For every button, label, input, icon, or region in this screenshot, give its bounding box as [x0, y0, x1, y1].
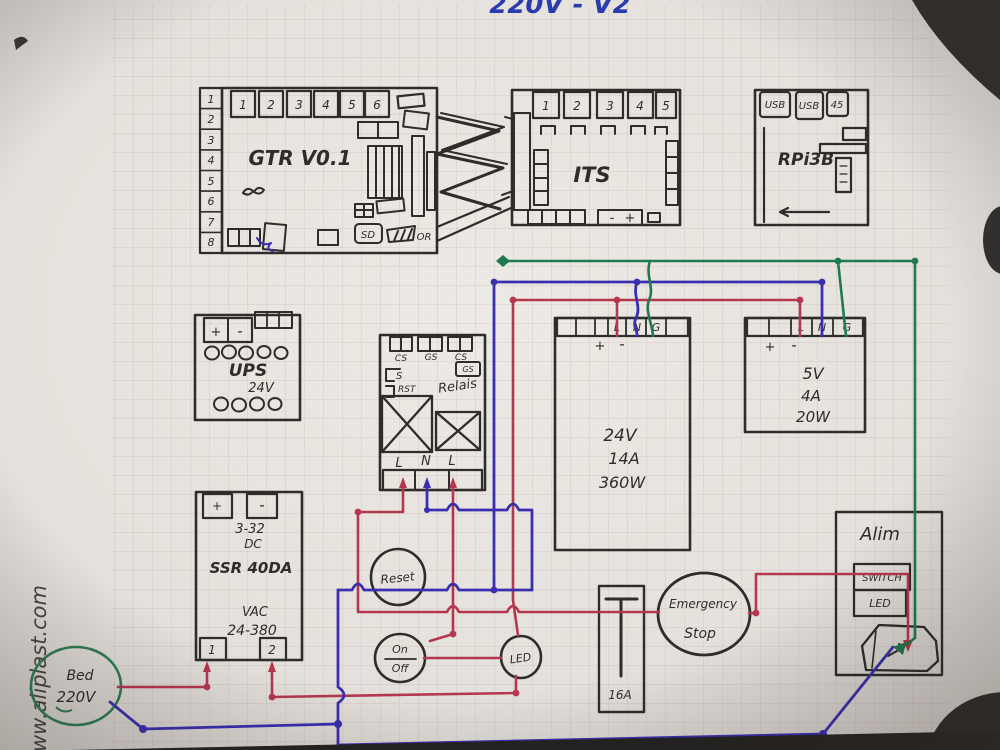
schematic-canvas: 220V - V2 ww.aliplast.com 1 2 3 4 5 6 7 …	[0, 0, 1000, 750]
schematic-photo: 220V - V2 ww.aliplast.com 1 2 3 4 5 6 7 …	[0, 0, 1000, 750]
photo-artifacts	[0, 0, 1000, 750]
photo-vignette	[0, 0, 1000, 750]
